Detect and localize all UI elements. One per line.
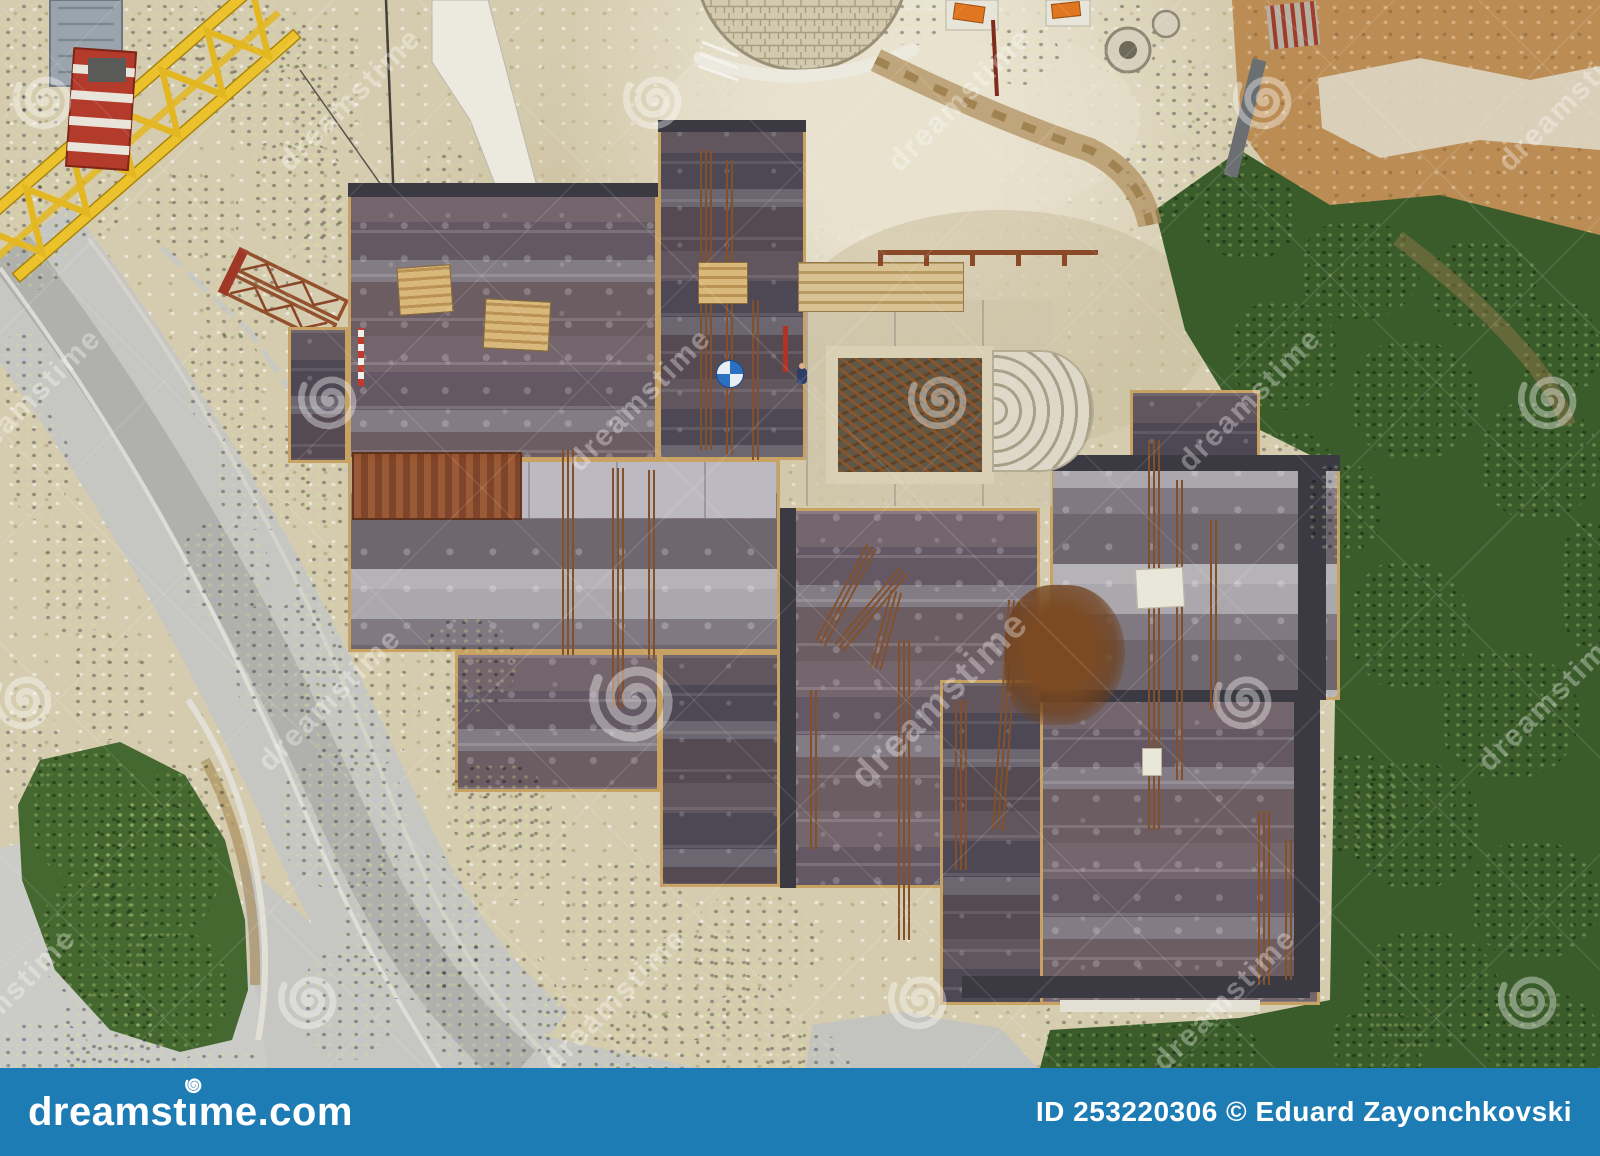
watermark-spiral-icon xyxy=(622,67,688,133)
watermark-spiral-icon xyxy=(277,967,343,1033)
watermark-spiral-icon xyxy=(907,367,973,433)
logo-letter-i: ı xyxy=(187,1090,199,1135)
aerial-photo: dreamstimedreamstimedreamstimedreamstime… xyxy=(0,0,1600,1068)
watermark-spiral-icon xyxy=(1497,967,1563,1033)
image-credit: ID 253220306 © Eduard Zayonchkovski xyxy=(1036,1096,1572,1128)
watermark-spiral-icon xyxy=(1517,367,1583,433)
watermark-grid-lines xyxy=(0,0,1600,1068)
watermark-spiral-icon xyxy=(12,67,78,133)
dreamstime-logo: dreamstıme.com xyxy=(28,1090,353,1135)
watermark-spiral-icon xyxy=(1212,667,1278,733)
watermark-spiral-icon xyxy=(887,967,953,1033)
logo-text-right: me.com xyxy=(199,1090,353,1134)
watermark-footer-bar: dreamstıme.com ID 253220306 © Eduard Zay… xyxy=(0,1068,1600,1156)
spiral-icon xyxy=(183,1074,205,1096)
watermark-spiral-icon xyxy=(589,654,681,746)
watermark-spiral-icon xyxy=(1232,67,1298,133)
watermark-spiral-icon xyxy=(297,367,363,433)
logo-text-left: dreamst xyxy=(28,1090,187,1134)
watermark-spiral-icon xyxy=(0,667,58,733)
stock-photo-page: dreamstimedreamstimedreamstimedreamstime… xyxy=(0,0,1600,1156)
